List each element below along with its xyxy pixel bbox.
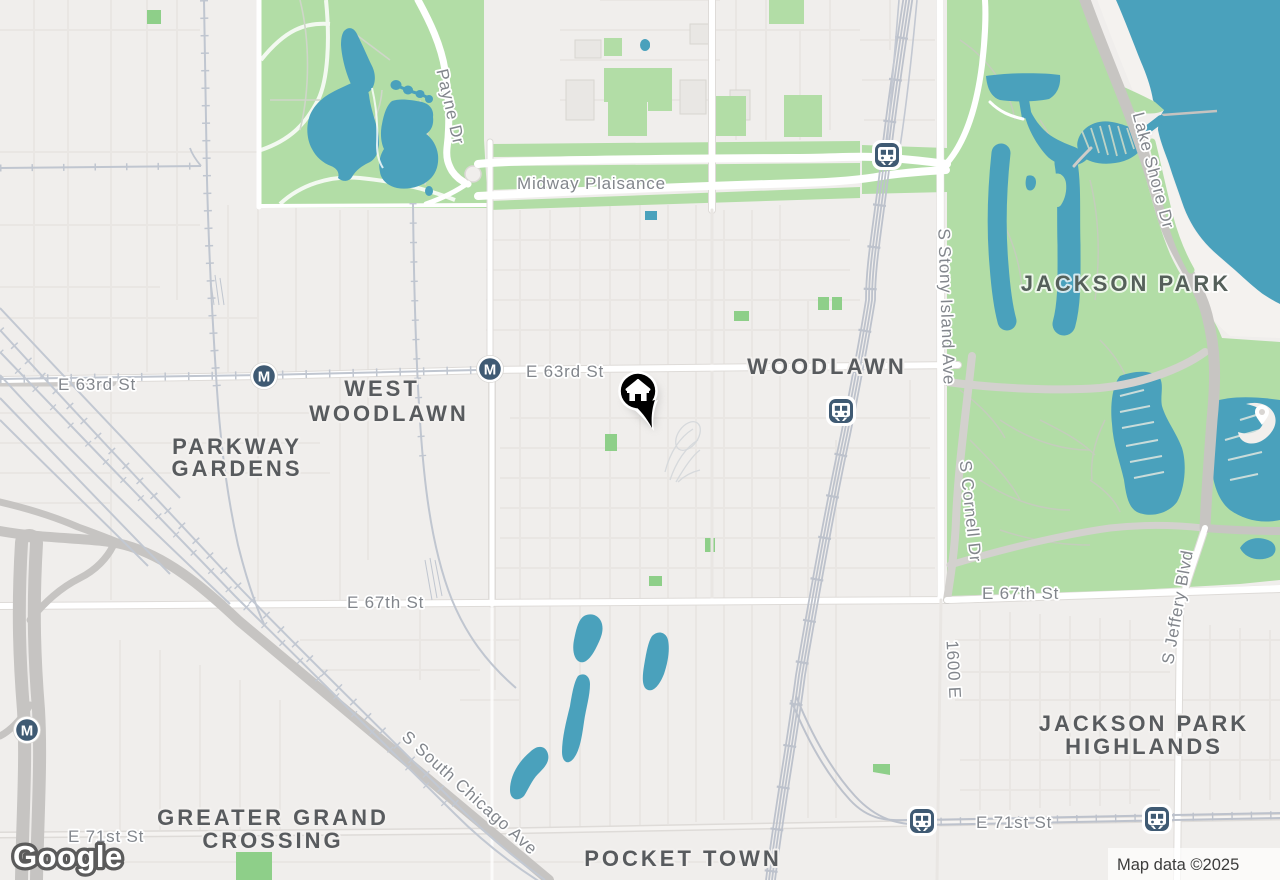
svg-text:GARDENS: GARDENS bbox=[171, 456, 302, 481]
svg-text:E 63rd St: E 63rd St bbox=[526, 362, 604, 381]
svg-text:JACKSON PARK: JACKSON PARK bbox=[1021, 271, 1231, 296]
svg-text:E 63rd St: E 63rd St bbox=[58, 375, 136, 394]
svg-text:Map data ©2025: Map data ©2025 bbox=[1117, 856, 1239, 874]
svg-text:WOODLAWN: WOODLAWN bbox=[309, 401, 469, 426]
svg-text:E 67th St: E 67th St bbox=[347, 593, 424, 612]
svg-text:1600 E: 1600 E bbox=[942, 640, 964, 700]
svg-text:JACKSON PARK: JACKSON PARK bbox=[1039, 711, 1249, 736]
svg-text:WEST: WEST bbox=[344, 376, 420, 401]
svg-text:M: M bbox=[484, 362, 497, 379]
svg-text:Google: Google bbox=[13, 839, 123, 874]
svg-text:E 71st St: E 71st St bbox=[976, 813, 1052, 832]
svg-text:M: M bbox=[258, 369, 271, 386]
svg-text:Midway Plaisance: Midway Plaisance bbox=[517, 174, 666, 193]
svg-text:CROSSING: CROSSING bbox=[202, 828, 343, 853]
svg-text:GREATER GRAND: GREATER GRAND bbox=[157, 805, 389, 830]
svg-text:WOODLAWN: WOODLAWN bbox=[747, 354, 907, 379]
svg-text:HIGHLANDS: HIGHLANDS bbox=[1065, 734, 1223, 759]
svg-text:M: M bbox=[21, 723, 34, 740]
svg-text:E 67th St: E 67th St bbox=[982, 584, 1059, 603]
svg-text:POCKET TOWN: POCKET TOWN bbox=[584, 846, 782, 871]
